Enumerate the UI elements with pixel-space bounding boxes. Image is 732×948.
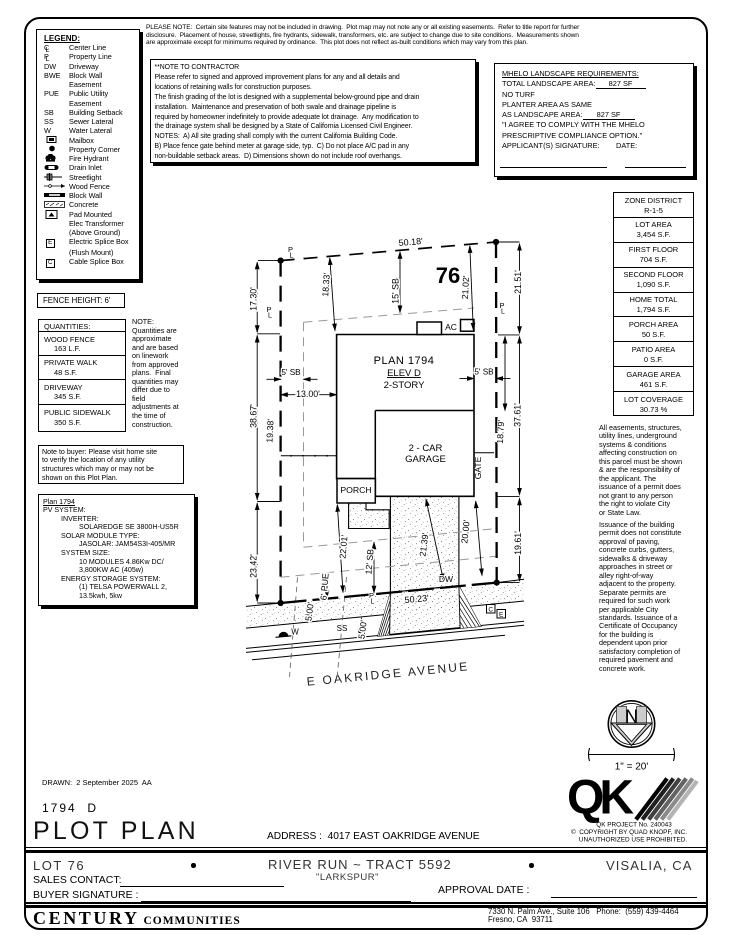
svg-text:50.18': 50.18'	[398, 236, 423, 248]
svg-text:QK PROJECT No. 240043: QK PROJECT No. 240043	[596, 822, 672, 829]
svg-text:AC: AC	[445, 322, 457, 332]
svg-text:18.79': 18.79'	[495, 419, 506, 444]
svg-text:38.67': 38.67'	[249, 404, 259, 428]
svg-text:2-STORY: 2-STORY	[384, 380, 425, 391]
svg-text:37.61': 37.61'	[513, 403, 523, 427]
svg-text:21.51': 21.51'	[513, 270, 523, 294]
svg-text:6' PUE: 6' PUE	[318, 573, 330, 601]
svg-text:13.00': 13.00'	[296, 389, 320, 399]
svg-text:QK: QK	[567, 772, 634, 825]
svg-text:2 - CAR: 2 - CAR	[409, 443, 443, 454]
svg-text:N: N	[625, 707, 638, 727]
svg-text:PORCH: PORCH	[340, 485, 371, 495]
svg-text:17.30': 17.30'	[249, 287, 259, 311]
svg-text:15' SB: 15' SB	[391, 278, 401, 304]
svg-text:18.33': 18.33'	[320, 272, 332, 297]
svg-text:L: L	[501, 309, 505, 316]
svg-text:GARAGE: GARAGE	[405, 454, 446, 465]
svg-text:W: W	[291, 628, 299, 637]
svg-text:C: C	[488, 607, 493, 614]
svg-text:20.00': 20.00'	[459, 519, 471, 544]
svg-text:5' SB: 5' SB	[281, 368, 301, 377]
svg-text:23.42': 23.42'	[249, 554, 259, 578]
svg-text:SS: SS	[337, 624, 348, 633]
svg-text:19.38': 19.38'	[264, 418, 275, 443]
svg-text:L: L	[290, 253, 294, 260]
svg-text:DW: DW	[439, 574, 453, 584]
svg-text:E: E	[499, 612, 504, 619]
svg-text:© COPYRIGHT BY QUAD KNOPF, IN: © COPYRIGHT BY QUAD KNOPF, INC.	[571, 828, 687, 836]
svg-text:GATE: GATE	[473, 456, 483, 479]
svg-text:E OAKRIDGE AVENUE: E OAKRIDGE AVENUE	[306, 659, 470, 689]
svg-text:5' SB: 5' SB	[474, 368, 494, 377]
svg-text:22.01': 22.01'	[337, 534, 349, 559]
svg-text:ELEV D: ELEV D	[387, 368, 421, 379]
svg-text:UNAUTHORIZED USE PROHIBITED.: UNAUTHORIZED USE PROHIBITED.	[579, 837, 688, 844]
svg-text:PLAN 1794: PLAN 1794	[374, 355, 435, 367]
svg-text:21.02': 21.02'	[460, 275, 471, 300]
svg-text:76: 76	[436, 263, 460, 288]
svg-text:L: L	[268, 313, 272, 320]
svg-text:L: L	[371, 599, 375, 606]
svg-text:19.61': 19.61'	[513, 531, 523, 555]
